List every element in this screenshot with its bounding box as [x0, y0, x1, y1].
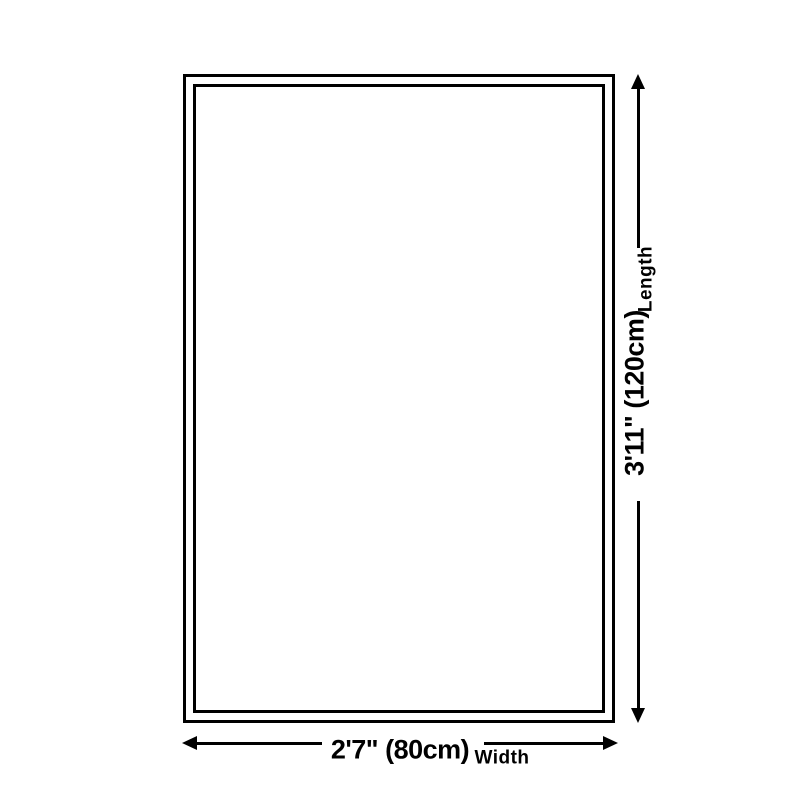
dimension-diagram: Length 3'11" (120cm) 2'7" (80cm) Width: [0, 0, 800, 800]
length-arrow-down-icon: [631, 708, 645, 723]
width-arrow-right-icon: [603, 736, 618, 750]
width-dimension-line-right: [484, 742, 605, 745]
product-outline: [183, 74, 615, 723]
width-value: 2'7" (80cm): [331, 737, 469, 764]
length-dimension-line-top: [637, 86, 640, 248]
width-label: Width: [474, 749, 529, 768]
width-dimension-line-left: [194, 742, 322, 745]
length-value: 3'11" (120cm): [622, 310, 649, 476]
product-outline-inner-border: [193, 84, 605, 713]
length-label: Length: [637, 246, 656, 312]
length-dimension-line-bottom: [637, 501, 640, 711]
